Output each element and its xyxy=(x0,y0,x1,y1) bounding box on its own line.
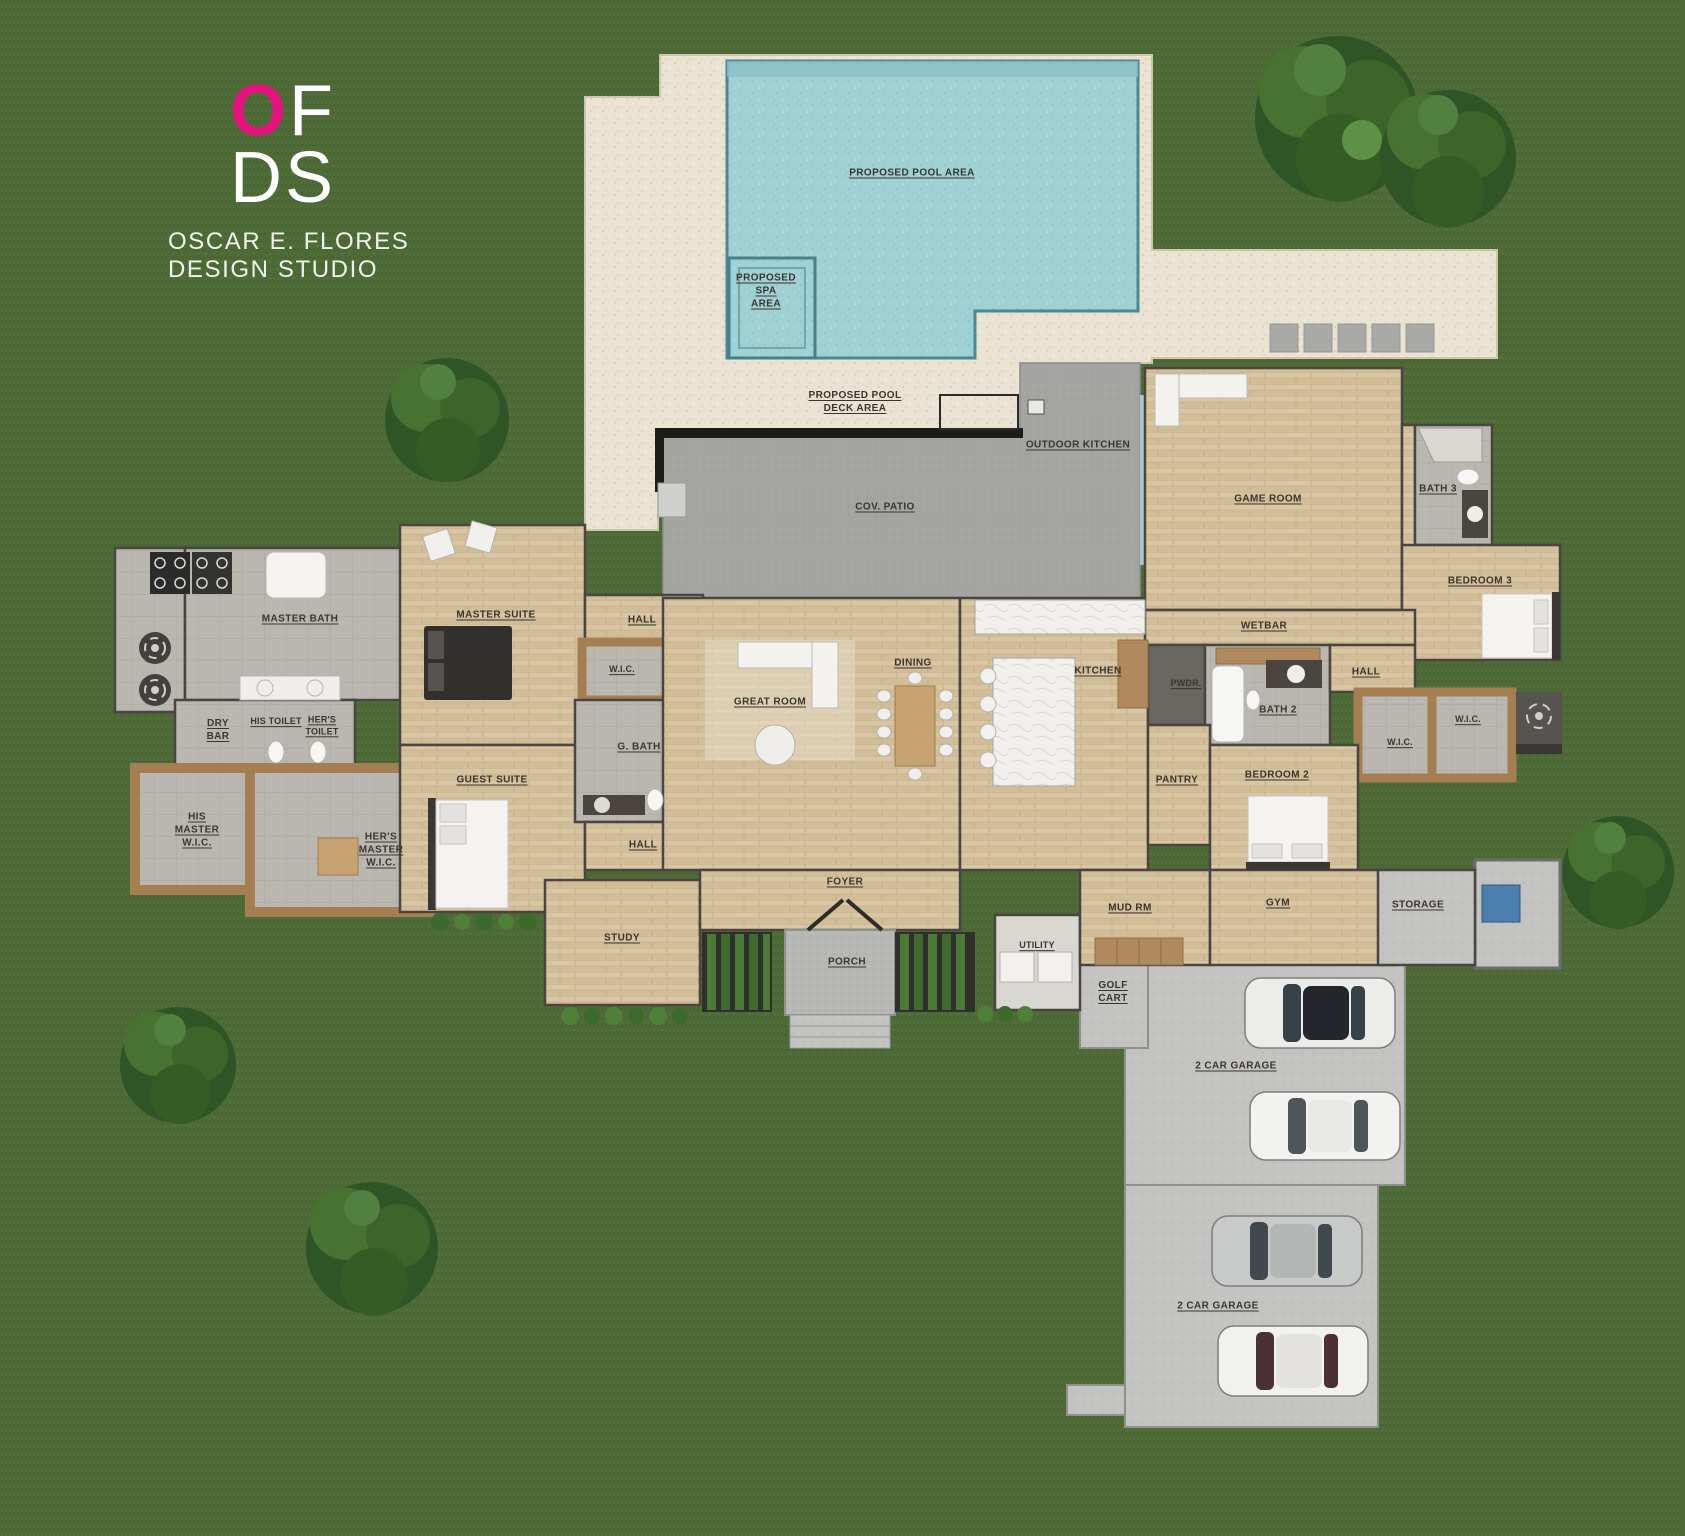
label-hers-toilet: HER'S TOILET xyxy=(305,714,338,737)
grill-icon xyxy=(1028,400,1044,414)
gbath-vanity xyxy=(583,795,645,815)
label-great-room: GREAT ROOM xyxy=(734,696,806,709)
studio-name-line1: OSCAR E. FLORES xyxy=(168,228,409,256)
studio-name: OSCAR E. FLORES DESIGN STUDIO xyxy=(168,228,409,285)
hers-wic-dresser xyxy=(318,838,358,875)
label-wic-bedroom3: W.I.C. xyxy=(1455,714,1481,726)
label-master-suite: MASTER SUITE xyxy=(456,609,535,622)
label-bath-3: BATH 3 xyxy=(1419,483,1457,496)
studio-logo: OF DS OSCAR E. FLORES DESIGN STUDIO xyxy=(168,78,409,285)
label-kitchen: KITCHEN xyxy=(1074,665,1121,678)
label-wic-bedroom2: W.I.C. xyxy=(1387,737,1413,749)
logo-line-ds: DS xyxy=(230,145,409,212)
porch-steps xyxy=(790,1015,890,1048)
car-3 xyxy=(1212,1216,1362,1286)
bedroom2-bed xyxy=(1246,796,1330,870)
label-hall-master: HALL xyxy=(628,614,656,627)
label-hers-master-wic: HER'S MASTER W.I.C. xyxy=(359,831,404,870)
label-porch: PORCH xyxy=(828,956,866,969)
car-4 xyxy=(1218,1326,1368,1396)
label-his-toilet: HIS TOILET xyxy=(250,716,301,728)
label-pool-deck: PROPOSED POOL DECK AREA xyxy=(809,389,902,415)
label-spa: PROPOSED SPA AREA xyxy=(736,272,796,311)
room-wic-bedroom3 xyxy=(1432,692,1512,778)
outdoor-kitchen-counter xyxy=(940,395,1018,429)
label-pantry: PANTRY xyxy=(1156,774,1198,787)
room-gym xyxy=(1210,870,1395,965)
label-gym: GYM xyxy=(1266,897,1290,910)
label-utility: UTILITY xyxy=(1019,940,1054,952)
label-bath-2: BATH 2 xyxy=(1259,704,1297,717)
label-storage: STORAGE xyxy=(1392,899,1444,912)
patio-west-wall xyxy=(655,428,664,492)
label-mud-rm: MUD RM xyxy=(1108,902,1152,915)
pool-shade-band xyxy=(727,61,1138,77)
car-1 xyxy=(1245,978,1395,1048)
bedroom3-bed xyxy=(1482,592,1560,660)
label-foyer: FOYER xyxy=(827,876,863,889)
label-g-bath: G. BATH xyxy=(617,741,660,754)
label-bedroom-2: BEDROOM 2 xyxy=(1245,769,1309,782)
label-cov-patio: COV. PATIO xyxy=(855,501,914,514)
porch-planter-right xyxy=(895,932,975,1012)
guest-bed xyxy=(428,798,508,910)
label-game-room: GAME ROOM xyxy=(1234,493,1302,506)
label-hall-guest: HALL xyxy=(629,839,657,852)
stepping-pavers xyxy=(1270,324,1434,352)
label-wic-master: W.I.C. xyxy=(609,664,635,676)
room-wic-bedroom2 xyxy=(1358,692,1432,778)
label-pwdr: PWDR. xyxy=(1171,678,1202,690)
golf-cart-bay xyxy=(1080,965,1148,1048)
pool-equipment-box xyxy=(1482,885,1520,922)
room-storage xyxy=(1378,870,1475,965)
spiral-fan-icon-east xyxy=(1516,692,1562,754)
floor-plan-rendering: OF DS OSCAR E. FLORES DESIGN STUDIO PROP… xyxy=(0,0,1685,1536)
label-study: STUDY xyxy=(604,932,640,945)
label-dry-bar: DRY BAR xyxy=(207,717,230,743)
label-wetbar: WETBAR xyxy=(1241,620,1287,633)
mud-lockers xyxy=(1095,938,1183,965)
master-bed xyxy=(424,626,512,700)
patio-fireplace xyxy=(658,483,686,517)
label-guest-suite: GUEST SUITE xyxy=(456,774,527,787)
studio-name-line2: DESIGN STUDIO xyxy=(168,256,409,284)
label-pool: PROPOSED POOL AREA xyxy=(849,167,975,180)
drive-stub xyxy=(1067,1385,1125,1415)
label-dining: DINING xyxy=(894,657,931,670)
porch-planter-left xyxy=(702,932,772,1012)
car-2 xyxy=(1250,1092,1400,1160)
label-hall-east: HALL xyxy=(1352,666,1380,679)
room-hall-guest xyxy=(585,822,670,870)
label-master-bath: MASTER BATH xyxy=(262,613,338,626)
label-his-master-wic: HIS MASTER W.I.C. xyxy=(175,811,220,850)
tree-left xyxy=(385,358,509,482)
label-golf-cart: GOLF CART xyxy=(1098,979,1127,1005)
porch-slab xyxy=(785,930,895,1015)
label-garage-lower: 2 CAR GARAGE xyxy=(1177,1300,1258,1313)
label-outdoor-kitchen: OUTDOOR KITCHEN xyxy=(1026,439,1130,452)
logo-line-of: OF xyxy=(230,78,409,145)
label-garage-upper: 2 CAR GARAGE xyxy=(1195,1060,1276,1073)
room-game-room xyxy=(1145,368,1402,610)
label-bedroom-3: BEDROOM 3 xyxy=(1448,575,1512,588)
